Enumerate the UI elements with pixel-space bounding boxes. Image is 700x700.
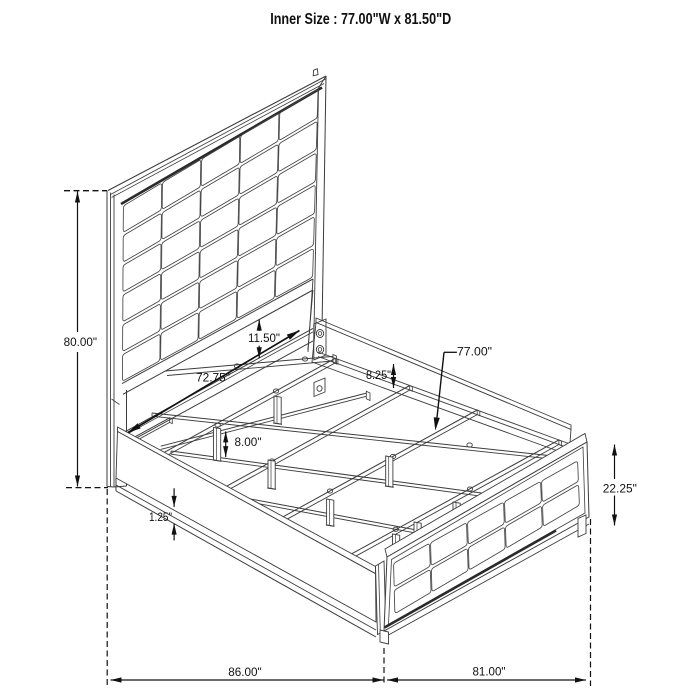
svg-text:72.75": 72.75" [196,371,230,385]
svg-text:Inner Size : 77.00"W x 81.50"D: Inner Size : 77.00"W x 81.50"D [270,11,451,28]
svg-text:86.00": 86.00" [228,665,261,679]
svg-text:8.00": 8.00" [235,435,262,449]
svg-text:77.00": 77.00" [457,345,492,359]
svg-text:22.25": 22.25" [603,482,637,496]
svg-text:81.00": 81.00" [473,665,506,679]
svg-text:1.25": 1.25" [149,510,172,524]
svg-text:8.25": 8.25" [366,368,391,382]
svg-text:80.00": 80.00" [64,335,97,349]
svg-text:11.50": 11.50" [248,331,280,345]
